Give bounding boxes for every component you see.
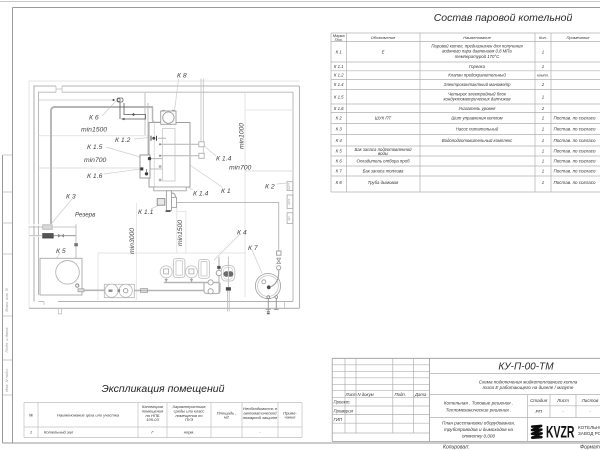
svg-text:Примечание: Примечание [566,35,590,40]
svg-text:К 1.4: К 1.4 [334,82,344,87]
svg-text:К 3: К 3 [66,194,76,201]
svg-text:К 1.2: К 1.2 [115,137,131,144]
svg-text:Электроконтактный манометр: Электроконтактный манометр [444,82,512,87]
svg-text:Шит управления котлом: Шит управления котлом [451,116,502,121]
svg-text:min1500: min1500 [177,220,184,246]
svg-text:КУ-П-00-ТМ: КУ-П-00-ТМ [498,362,554,373]
svg-text:Горелка: Горелка [469,64,486,69]
svg-text:Копировал:: Копировал: [443,445,470,450]
svg-text:№: № [29,413,34,418]
svg-text:min1500: min1500 [81,127,107,134]
svg-text:Подп.: Подп. [395,392,406,397]
svg-text:чание: чание [285,415,297,420]
svg-text:К 1.5: К 1.5 [87,144,103,151]
svg-text:Тепломеханические решения .: Тепломеханические решения . [446,408,512,413]
svg-text:К 6: К 6 [89,115,99,122]
svg-text:К 8: К 8 [336,180,343,185]
svg-text:N докум: N докум [358,392,374,397]
svg-text:min3000: min3000 [129,228,136,254]
svg-text:К 2: К 2 [265,184,275,191]
svg-text:Обозначение: Обозначение [371,35,396,40]
svg-text:К 1.6: К 1.6 [334,106,344,111]
svg-text:водяного пара давлением 0,8 М: водяного пара давлением 0,8 МПа [442,49,512,54]
svg-text:Бак запаса топлива: Бак запаса топлива [363,169,404,174]
svg-text:компл.: компл. [537,74,549,78]
svg-text:Схема подключения жидкотопливн: Схема подключения жидкотопливного котла [479,380,578,385]
svg-text:температурой 170°С: температурой 170°С [455,54,500,59]
svg-text:Лист: Лист [345,392,357,397]
svg-text:отметку 0,000: отметку 0,000 [462,434,495,439]
svg-text:К 1.4: К 1.4 [216,156,232,163]
svg-text:ЗАВОД РОССИИ: ЗАВОД РОССИИ [578,431,600,436]
svg-text:Наименование цеха или участка: Наименование цеха или участка [57,413,120,418]
svg-text:К 8: К 8 [177,73,187,80]
svg-text:Постав. по согласо: Постав. по согласо [554,149,597,154]
svg-text:К 5: К 5 [56,248,66,255]
svg-text:min700: min700 [84,157,107,164]
svg-text:Проект.: Проект. [334,400,351,405]
svg-text:Формат: Формат [580,445,600,450]
svg-text:К 1.4: К 1.4 [193,191,209,198]
svg-text:Постав. по согласо: Постав. по согласо [554,127,597,132]
svg-text:Труба дымовая: Труба дымовая [368,180,399,185]
svg-text:Постав. по согласо: Постав. по согласо [554,116,597,121]
svg-text:воды: воды [378,151,389,156]
svg-text:min1000: min1000 [239,123,246,149]
svg-text:К 6: К 6 [336,159,343,164]
svg-text:Проверил: Проверил [334,408,354,413]
svg-text:KVZR: KVZR [546,424,575,442]
svg-text:Постав. по согласо: Постав. по согласо [554,169,597,174]
svg-text:Охладитель отбора проб: Охладитель отбора проб [357,159,411,164]
svg-text:План расстановки оборудования,: План расстановки оборудования, [442,421,515,426]
svg-text:кондуктометрических датчиков: кондуктометрических датчиков [444,97,512,102]
svg-text:ГИП: ГИП [334,417,343,422]
svg-text:ПУЭ: ПУЭ [185,417,194,422]
svg-text:К 1.1: К 1.1 [334,64,344,69]
svg-text:К 7: К 7 [336,169,343,174]
svg-text:м2: м2 [224,415,230,420]
svg-text:Насос питательный: Насос питательный [456,127,499,132]
svg-text:ЩУП: ЩУП [287,182,291,189]
svg-text:Наименование: Наименование [463,35,491,40]
svg-text:К 3: К 3 [336,127,343,132]
svg-text:Состав паровой котельной: Состав паровой котельной [434,12,573,24]
svg-text:Дата: Дата [414,392,427,397]
svg-text:К 1.1: К 1.1 [138,209,154,216]
svg-text:Клапан предохранительный: Клапан предохранительный [448,73,506,78]
svg-text:Лист: Лист [556,398,569,403]
svg-text:трубопроводов и дымоходов на: трубопроводов и дымоходов на [444,427,513,432]
svg-text:Подп. и дата: Подп. и дата [4,327,9,353]
svg-text:Котельный зал: Котельный зал [44,430,74,435]
svg-text:К 4: К 4 [237,230,247,237]
svg-text:Водоподготовительный комплекс: Водоподготовительный комплекс [442,138,513,143]
svg-text:1: 1 [30,430,32,435]
svg-text:Поз.: Поз. [335,37,343,42]
svg-text:Резерв: Резерв [75,212,96,219]
svg-text:К 1.5: К 1.5 [334,95,344,100]
svg-text:К 1: К 1 [336,50,343,55]
svg-text:105-03: 105-03 [146,417,159,422]
svg-text:Указатель уровня: Указатель уровня [459,106,497,111]
svg-text:Кол.: Кол. [539,35,547,40]
svg-text:К 1: К 1 [221,188,231,195]
svg-text:ШУК ПТ: ШУК ПТ [375,116,392,121]
svg-text:К 1.6: К 1.6 [87,173,103,180]
svg-text:min700: min700 [229,165,252,172]
svg-text:К 2: К 2 [336,116,343,121]
svg-text:Котельная . Типовые решения .: Котельная . Типовые решения . [444,401,513,406]
svg-text:норм.: норм. [184,430,194,435]
svg-text:Постав. по согласо: Постав. по согласо [554,138,597,143]
svg-text:Паровой котел, предназначен дл: Паровой котел, предназначен для получени… [431,43,523,48]
svg-text:К 5: К 5 [336,149,343,154]
svg-text:Взам. инв. N: Взам. инв. N [4,288,9,311]
svg-text:К 4: К 4 [336,138,343,143]
svg-text:РП: РП [535,409,542,414]
svg-text:Е: Е [382,50,385,55]
svg-text:Экспликация помещений: Экспликация помещений [102,383,225,395]
svg-text:Стадия: Стадия [530,398,548,403]
svg-text:типа Е работающего на дизеле /: типа Е работающего на дизеле / мазуте [483,385,574,390]
svg-text:Инв. N подл.: Инв. N подл. [4,368,9,391]
svg-text:ЩУК: ЩУК [287,198,291,204]
svg-text:К 1.2: К 1.2 [334,73,344,78]
svg-text:Листов: Листов [581,398,599,403]
svg-text:Постав. по согласо: Постав. по согласо [554,180,597,185]
svg-text:пожарной защите: пожарной защите [243,415,278,420]
svg-text:КОТЕЛЬНЫЙ: КОТЕЛЬНЫЙ [578,423,600,430]
svg-text:К 7: К 7 [248,245,258,252]
svg-text:Постав. по согласо: Постав. по согласо [554,159,597,164]
